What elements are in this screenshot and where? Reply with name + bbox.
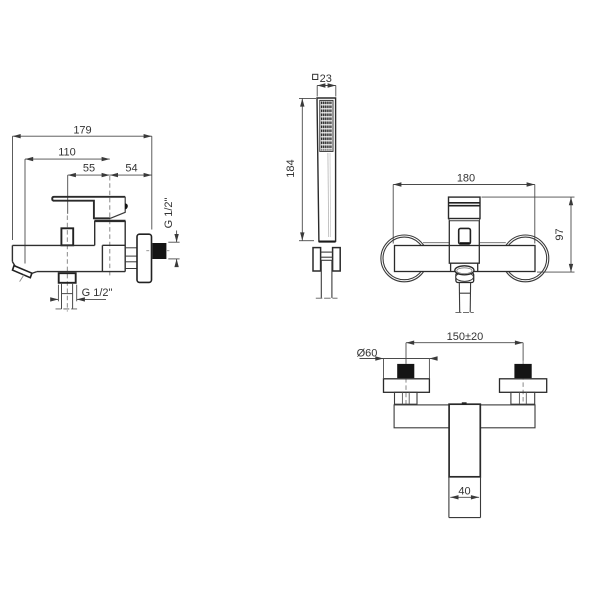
svg-text:40: 40 (458, 486, 470, 498)
svg-text:G 1/2": G 1/2" (163, 198, 175, 229)
svg-text:150±20: 150±20 (447, 331, 484, 343)
svg-text:23: 23 (320, 73, 332, 85)
svg-text:G 1/2": G 1/2" (82, 287, 113, 299)
svg-text:180: 180 (457, 173, 475, 185)
svg-text:179: 179 (73, 125, 91, 137)
svg-text:54: 54 (125, 163, 137, 175)
svg-text:55: 55 (83, 163, 95, 175)
svg-text:110: 110 (58, 147, 76, 159)
svg-text:Ø60: Ø60 (357, 348, 378, 360)
svg-text:184: 184 (285, 159, 297, 177)
svg-text:97: 97 (554, 228, 566, 240)
